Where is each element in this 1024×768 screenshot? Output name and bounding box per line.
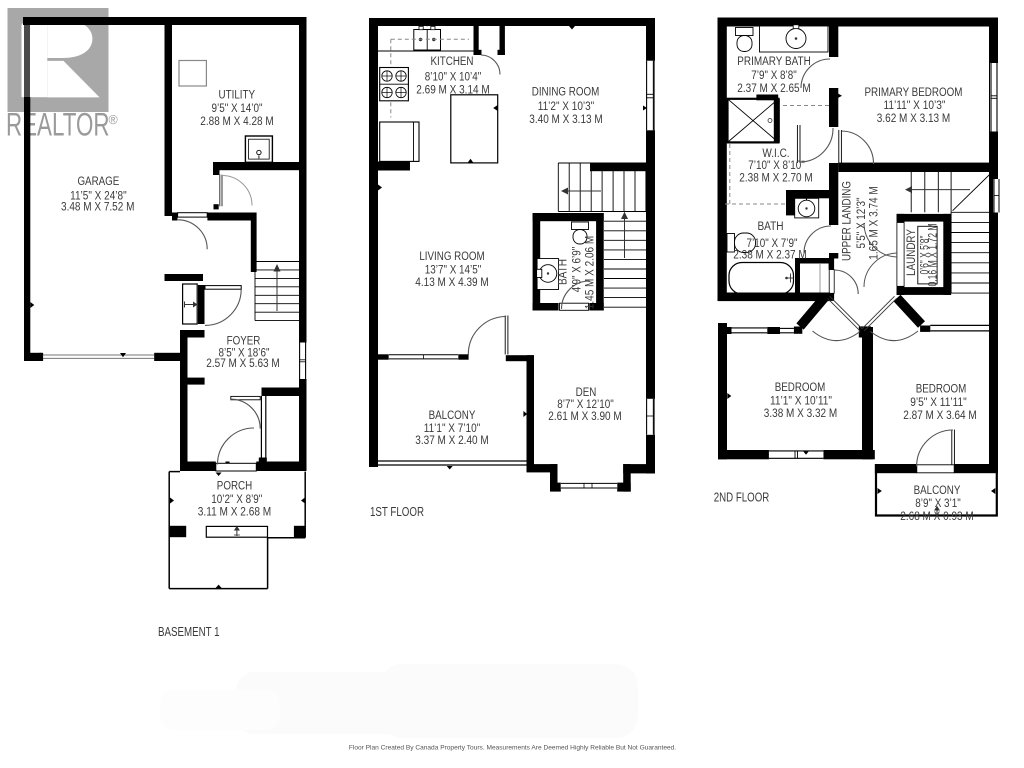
svg-text:1ST FLOOR: 1ST FLOOR xyxy=(370,504,424,519)
svg-text:BATH: BATH xyxy=(757,219,783,233)
svg-text:2.69 M X 3.14 M: 2.69 M X 3.14 M xyxy=(416,83,489,97)
svg-text:0.16 M X 1.72 M: 0.16 M X 1.72 M xyxy=(926,223,940,286)
svg-text:LIVING ROOM: LIVING ROOM xyxy=(419,249,484,263)
svg-text:8’10" X 10’4": 8’10" X 10’4" xyxy=(425,70,482,84)
svg-text:8’9" X 3’1": 8’9" X 3’1" xyxy=(915,496,960,510)
svg-text:UPPER LANDING: UPPER LANDING xyxy=(840,181,854,261)
svg-text:3.11 M X 2.68 M: 3.11 M X 2.68 M xyxy=(198,505,271,519)
svg-text:1.65 M X 3.74 M: 1.65 M X 3.74 M xyxy=(867,186,881,259)
svg-text:7’9" X 8’8": 7’9" X 8’8" xyxy=(751,68,796,82)
svg-text:PRIMARY BEDROOM: PRIMARY BEDROOM xyxy=(865,85,963,99)
svg-text:9’5" X 14’0": 9’5" X 14’0" xyxy=(212,101,263,115)
svg-text:Floor Plan Created By Canada P: Floor Plan Created By Canada Property To… xyxy=(349,745,676,752)
svg-text:BALCONY: BALCONY xyxy=(429,408,476,422)
svg-text:BALCONY: BALCONY xyxy=(914,483,961,497)
svg-text:3.48 M X 7.52 M: 3.48 M X 7.52 M xyxy=(61,200,134,214)
svg-text:2.38 M X 2.37 M: 2.38 M X 2.37 M xyxy=(733,248,806,262)
svg-text:3.37 M X 2.40 M: 3.37 M X 2.40 M xyxy=(415,433,488,447)
svg-text:DINING ROOM: DINING ROOM xyxy=(532,85,600,99)
svg-text:PRIMARY BATH: PRIMARY BATH xyxy=(737,54,811,68)
svg-text:BEDROOM: BEDROOM xyxy=(916,382,967,396)
svg-text:BATH: BATH xyxy=(556,259,570,285)
svg-text:2.38 M X 2.70 M: 2.38 M X 2.70 M xyxy=(739,171,812,185)
svg-text:KITCHEN: KITCHEN xyxy=(431,54,474,68)
svg-text:11’2" X 10’3": 11’2" X 10’3" xyxy=(538,99,595,113)
svg-text:3.40 M X 3.13 M: 3.40 M X 3.13 M xyxy=(529,112,602,126)
svg-text:UTILITY: UTILITY xyxy=(219,88,256,102)
svg-text:2.57 M X 5.63 M: 2.57 M X 5.63 M xyxy=(206,356,279,370)
svg-text:2.68 M X 0.93 M: 2.68 M X 0.93 M xyxy=(900,509,973,523)
svg-text:2ND FLOOR: 2ND FLOOR xyxy=(714,490,770,505)
svg-text:2.88 M X 4.28 M: 2.88 M X 4.28 M xyxy=(200,114,273,128)
svg-text:BASEMENT 1: BASEMENT 1 xyxy=(158,624,220,639)
svg-text:4’9" X 6’9": 4’9" X 6’9" xyxy=(570,247,584,292)
svg-text:BEDROOM: BEDROOM xyxy=(775,380,826,394)
svg-text:LAUNDRY: LAUNDRY xyxy=(904,229,918,276)
svg-text:3.62 M X 3.13 M: 3.62 M X 3.13 M xyxy=(877,111,950,125)
svg-text:REALTOR: REALTOR xyxy=(6,107,110,143)
svg-text:GARAGE: GARAGE xyxy=(77,174,119,188)
svg-text:2.37 M X 2.65 M: 2.37 M X 2.65 M xyxy=(737,81,810,95)
svg-text:PORCH: PORCH xyxy=(217,479,252,493)
svg-text:2.87 M X 3.64 M: 2.87 M X 3.64 M xyxy=(903,408,976,422)
svg-text:9’5" X 11’11": 9’5" X 11’11" xyxy=(910,395,967,409)
svg-text:®: ® xyxy=(109,113,119,127)
svg-text:2.61 M X 3.90 M: 2.61 M X 3.90 M xyxy=(548,409,621,423)
svg-text:4.13 M X 4.39 M: 4.13 M X 4.39 M xyxy=(415,275,488,289)
svg-text:11’11" X 10’3": 11’11" X 10’3" xyxy=(883,98,945,112)
svg-text:3.38 M X 3.32 M: 3.38 M X 3.32 M xyxy=(764,406,837,420)
svg-text:1.45 M X 2.06 M: 1.45 M X 2.06 M xyxy=(583,236,597,309)
